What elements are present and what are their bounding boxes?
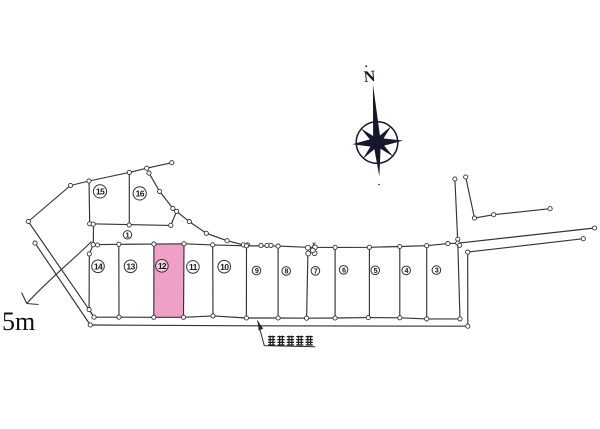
- svg-text:5m: 5m: [2, 307, 35, 336]
- svg-text:16: 16: [136, 189, 145, 199]
- svg-text:10: 10: [220, 262, 229, 272]
- svg-text:N: N: [363, 68, 376, 86]
- svg-text:13: 13: [126, 261, 135, 271]
- svg-text:15: 15: [96, 187, 105, 197]
- svg-text:12: 12: [158, 261, 167, 271]
- svg-text:1: 1: [125, 231, 129, 240]
- svg-text:11: 11: [189, 262, 198, 272]
- svg-text:14: 14: [94, 261, 103, 271]
